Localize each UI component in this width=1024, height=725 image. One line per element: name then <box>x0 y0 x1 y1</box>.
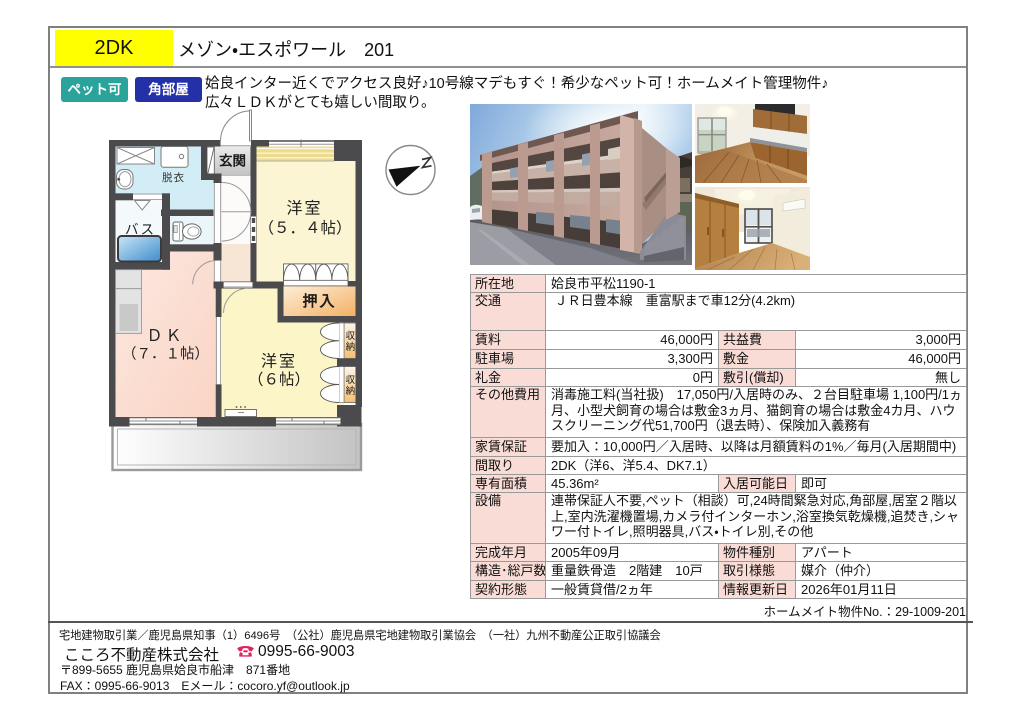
svg-text:バス: バス <box>125 222 156 237</box>
svg-text:押入: 押入 <box>302 292 336 310</box>
svg-text:脱衣: 脱衣 <box>162 171 185 184</box>
svg-text:ＤＫ: ＤＫ <box>146 328 184 345</box>
svg-text:洋室: 洋室 <box>286 200 322 218</box>
svg-text:収: 収 <box>346 331 356 342</box>
svg-text:玄関: 玄関 <box>219 153 246 169</box>
svg-text:納: 納 <box>346 385 356 397</box>
svg-text:（６帖）: （６帖） <box>248 371 310 389</box>
svg-text:（７．１帖）: （７．１帖） <box>122 346 209 363</box>
svg-text:洋室: 洋室 <box>261 353 297 371</box>
svg-text:収: 収 <box>346 375 356 386</box>
svg-text:（５．４帖）: （５．４帖） <box>258 219 351 237</box>
svg-text:納: 納 <box>346 341 356 353</box>
